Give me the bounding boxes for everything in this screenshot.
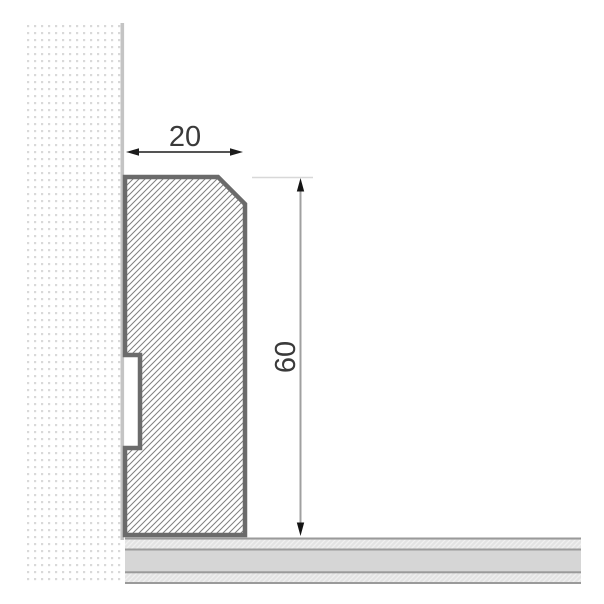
- floor-section: [125, 538, 581, 585]
- floor-solid-layer: [125, 551, 581, 572]
- floor-top-border: [125, 538, 581, 540]
- wall-section: [25, 23, 124, 581]
- floor-bottom-border: [125, 582, 581, 584]
- wall-dotted-area: [25, 23, 121, 581]
- dimension-height-label: 60: [270, 341, 302, 373]
- floor-border-line: [125, 549, 581, 551]
- floor-screed-layer-top: [125, 540, 581, 549]
- arrowhead-up-icon: [297, 178, 304, 192]
- dimension-width-label: 20: [169, 121, 201, 153]
- arrowhead-left-icon: [126, 148, 139, 155]
- cross-section-drawing: 20 60: [0, 0, 604, 604]
- floor-border-line: [125, 571, 581, 573]
- arrowhead-down-icon: [297, 523, 304, 537]
- skirting-board-profile: [125, 177, 245, 535]
- dimension-width: 20: [126, 121, 243, 156]
- dimension-height: 60: [252, 178, 313, 537]
- drawing-canvas: 20 60: [0, 0, 604, 604]
- floor-screed-layer-bottom: [125, 573, 581, 582]
- arrowhead-right-icon: [230, 148, 243, 155]
